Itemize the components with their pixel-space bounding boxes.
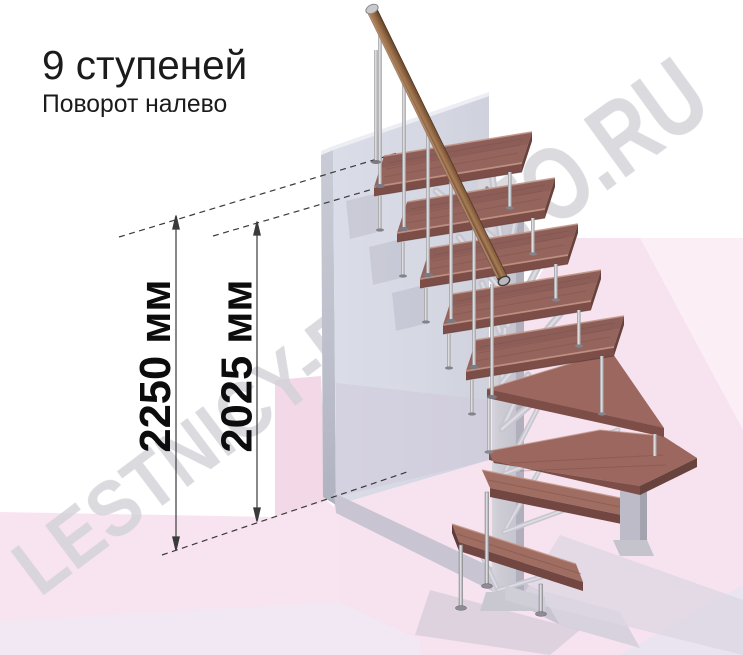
svg-text:2025 мм: 2025 мм xyxy=(214,279,262,452)
svg-text:Поворот налево: Поворот налево xyxy=(42,91,227,118)
svg-text:2250 мм: 2250 мм xyxy=(132,279,180,452)
svg-text:9 ступеней: 9 ступеней xyxy=(42,42,247,88)
